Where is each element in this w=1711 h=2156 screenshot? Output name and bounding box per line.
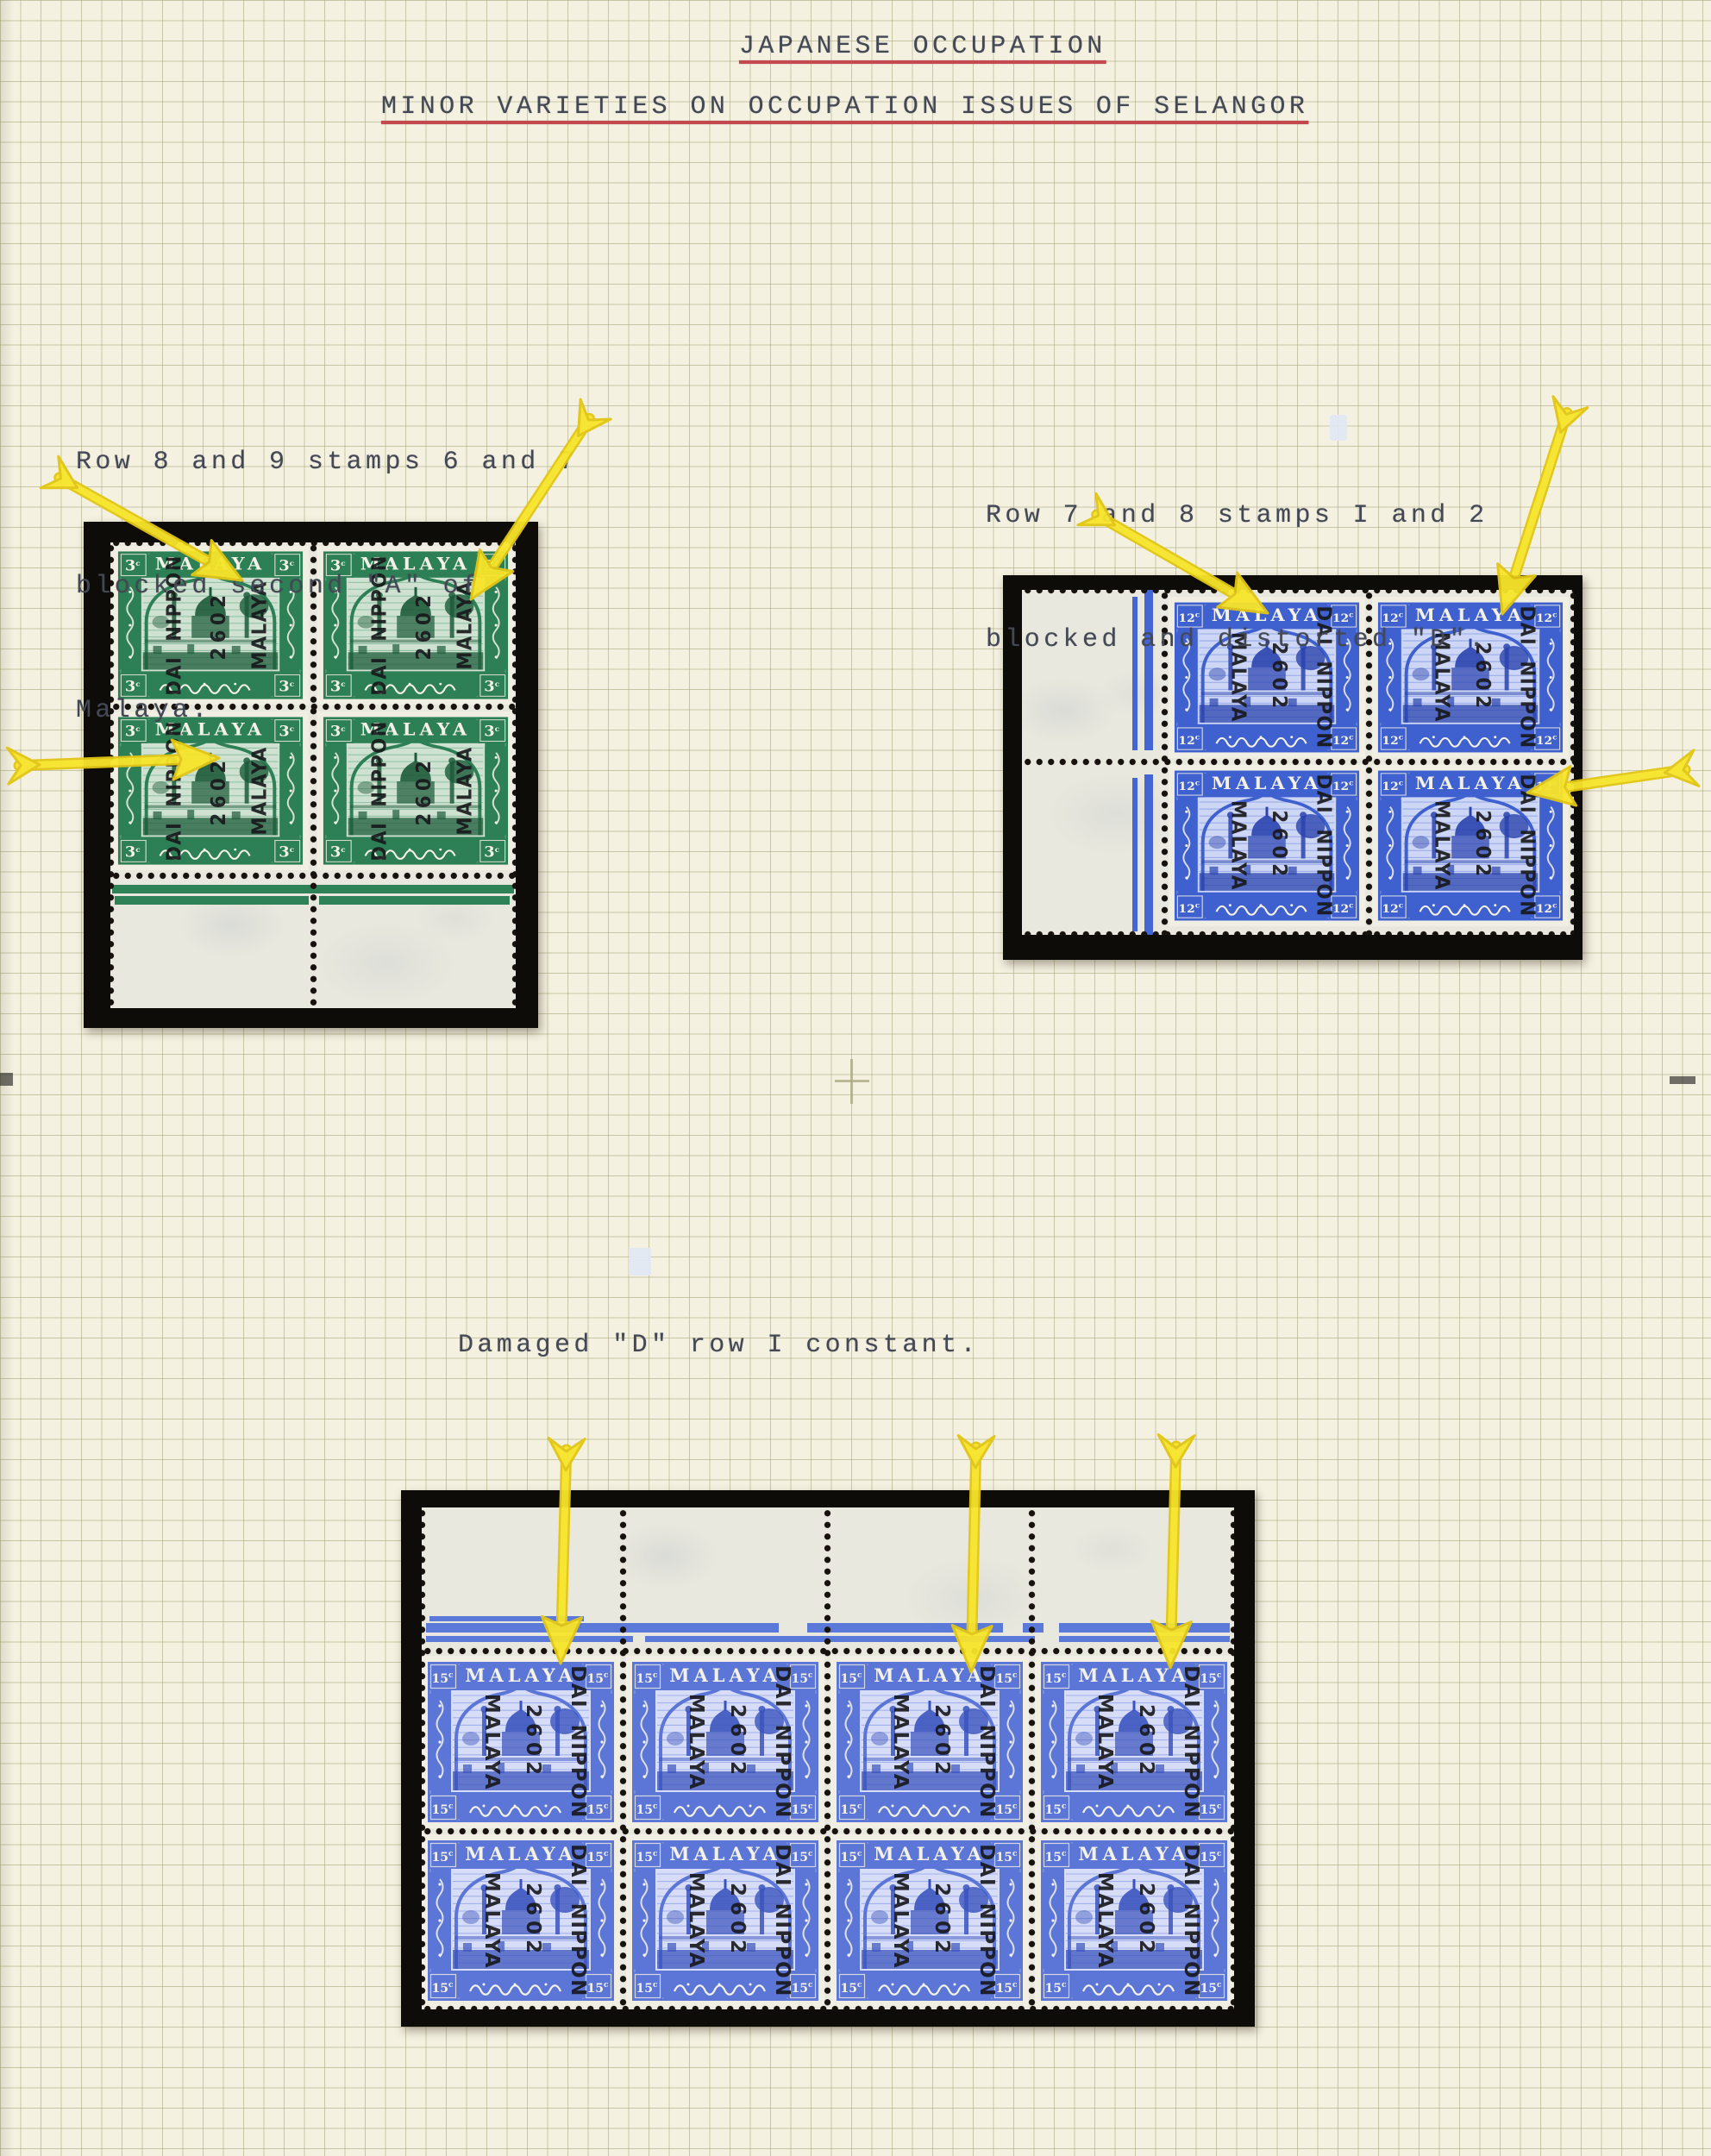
perforation-line: [617, 1507, 629, 2009]
svg-text:DAI NIPPON: DAI NIPPON: [975, 1844, 998, 1997]
svg-text:2602: 2602: [1268, 810, 1291, 881]
selvage-colour-bar: [115, 896, 310, 905]
svg-text:MALAYA: MALAYA: [1078, 1843, 1190, 1865]
svg-text:2602: 2602: [522, 1704, 544, 1780]
note-line: Damaged "D" row I constant.: [458, 1325, 980, 1366]
note-line: blocked second "A" of: [76, 566, 578, 607]
svg-text:MALAYA: MALAYA: [874, 1843, 986, 1865]
perforation-line: [822, 1507, 833, 2009]
selvage-colour-bar: [1059, 1623, 1230, 1633]
svg-text:DAI NIPPON: DAI NIPPON: [567, 1844, 589, 1997]
svg-text:MALAYA: MALAYA: [465, 1664, 577, 1686]
selvage-colour-bar: [645, 1636, 1035, 1642]
selvage-colour-bar: [426, 1623, 780, 1633]
stamp-blue-15c-r2c4: MALAYA 15c 15c 15c 15c DAI NIPPON 2602 M…: [1035, 1834, 1233, 2007]
stamp-blue-15c-r1c3: MALAYA 15c 15c 15c 15c DAI NIPPON 2602 M…: [830, 1656, 1029, 1828]
svg-text:MALAYA: MALAYA: [1226, 800, 1250, 891]
svg-text:MALAYA: MALAYA: [480, 1694, 503, 1790]
svg-text:MALAYA: MALAYA: [889, 1872, 912, 1969]
note-line: blocked and distorted "D".: [986, 619, 1488, 661]
stamp-blue-12c-r2c1: MALAYA 12c 12c 12c 12c DAI NIPPON 2602 M…: [1169, 765, 1365, 926]
stamp-blue-15c-r2c1: MALAYA 15c 15c 15c 15c DAI NIPPON 2602 M…: [422, 1834, 620, 2007]
svg-text:DAI NIPPON: DAI NIPPON: [1312, 774, 1335, 917]
svg-text:MALAYA: MALAYA: [685, 1872, 707, 1969]
page-edge-tick: [0, 1073, 13, 1086]
svg-text:MALAYA: MALAYA: [1430, 800, 1453, 891]
svg-text:MALAYA: MALAYA: [1212, 774, 1322, 793]
perforation-line: [1026, 1507, 1037, 2009]
stamp-blue-15c-r1c1: MALAYA 15c 15c 15c 15c DAI NIPPON 2602 M…: [422, 1656, 620, 1828]
svg-text:MALAYA: MALAYA: [669, 1843, 781, 1865]
svg-text:DAI NIPPON: DAI NIPPON: [1180, 1844, 1202, 1997]
svg-text:DAI NIPPON: DAI NIPPON: [567, 1665, 589, 1819]
note-left: Row 8 and 9 stamps 6 and 7 blocked secon…: [76, 359, 578, 814]
stamp-blue-12c-r2c2: MALAYA 12c 12c 12c 12c DAI NIPPON 2602 M…: [1372, 765, 1569, 926]
perforation-line: [422, 2003, 1234, 2009]
svg-text:MALAYA: MALAYA: [874, 1664, 986, 1686]
svg-text:MALAYA: MALAYA: [1078, 1664, 1190, 1686]
stamp-blue-15c-r1c2: MALAYA 15c 15c 15c 15c DAI NIPPON 2602 M…: [626, 1656, 824, 1828]
selvage-colour-bar: [319, 896, 510, 905]
selvage-colour-bar: [1059, 1636, 1230, 1642]
stamp-blue-15c-r2c3: MALAYA 15c 15c 15c 15c DAI NIPPON 2602 M…: [830, 1834, 1029, 2007]
svg-text:DAI NIPPON: DAI NIPPON: [1515, 774, 1539, 917]
svg-text:MALAYA: MALAYA: [669, 1664, 781, 1686]
perforation-line: [1568, 590, 1574, 935]
svg-text:MALAYA: MALAYA: [1094, 1694, 1116, 1790]
svg-text:2602: 2602: [1135, 1704, 1157, 1780]
perforation-line: [1228, 1507, 1234, 2009]
svg-text:2602: 2602: [726, 1704, 749, 1780]
svg-text:DAI NIPPON: DAI NIPPON: [771, 1844, 793, 1997]
selvage-colour-bar: [426, 1636, 633, 1642]
perforation-line: [422, 1507, 428, 2009]
svg-text:2602: 2602: [726, 1883, 749, 1959]
note-line: Row 7 and 8 stamps I and 2: [986, 495, 1488, 536]
selvage-colour-bar: [807, 1623, 1002, 1633]
svg-text:2602: 2602: [1135, 1883, 1157, 1959]
stamp-sheet-blue-15c: MALAYA 15c 15c 15c 15c DAI NIPPON 2602 M…: [422, 1507, 1234, 2009]
selvage-colour-bar: [429, 1616, 584, 1621]
svg-text:2602: 2602: [931, 1704, 953, 1780]
note-right: Row 7 and 8 stamps I and 2 blocked and d…: [986, 412, 1488, 743]
svg-text:MALAYA: MALAYA: [465, 1843, 577, 1865]
note-center: Damaged "D" row I constant.: [458, 1242, 980, 1449]
svg-text:2602: 2602: [522, 1883, 544, 1959]
page-edge-tick: [1670, 1076, 1695, 1084]
note-line: Malaya.: [76, 690, 578, 731]
svg-text:2602: 2602: [931, 1883, 953, 1959]
page-subtitle: MINOR VARIETIES ON OCCUPATION ISSUES OF …: [381, 86, 1308, 128]
svg-text:MALAYA: MALAYA: [685, 1694, 707, 1790]
perforation-line: [422, 1645, 1234, 1657]
album-page: JAPANESE OCCUPATION MINOR VARIETIES ON O…: [0, 0, 1711, 2156]
perforation-line: [1022, 756, 1574, 768]
svg-text:MALAYA: MALAYA: [889, 1694, 912, 1790]
selvage-colour-bar: [1144, 774, 1153, 935]
perforation-line: [1022, 929, 1574, 935]
stamp-blue-15c-r2c2: MALAYA 15c 15c 15c 15c DAI NIPPON 2602 M…: [626, 1834, 824, 2007]
note-line: Row 8 and 9 stamps 6 and 7: [76, 442, 578, 483]
stamp-blue-15c-r1c4: MALAYA 15c 15c 15c 15c DAI NIPPON 2602 M…: [1035, 1656, 1233, 1828]
pencil-cross-mark: [835, 1059, 869, 1104]
svg-text:2602: 2602: [1471, 810, 1495, 881]
svg-text:DAI NIPPON: DAI NIPPON: [975, 1665, 998, 1819]
svg-text:MALAYA: MALAYA: [480, 1872, 503, 1969]
svg-text:DAI NIPPON: DAI NIPPON: [1515, 605, 1539, 749]
svg-text:DAI NIPPON: DAI NIPPON: [771, 1665, 793, 1819]
svg-text:MALAYA: MALAYA: [1415, 774, 1526, 793]
perforation-line: [110, 870, 516, 881]
svg-text:DAI NIPPON: DAI NIPPON: [1180, 1665, 1202, 1819]
page-title: JAPANESE OCCUPATION: [739, 26, 1106, 67]
stamp-block-blue-15c: MALAYA 15c 15c 15c 15c DAI NIPPON 2602 M…: [401, 1490, 1255, 2027]
selvage-colour-bar: [1132, 778, 1138, 931]
svg-text:MALAYA: MALAYA: [1094, 1872, 1116, 1969]
perforation-line: [422, 1826, 1234, 1837]
